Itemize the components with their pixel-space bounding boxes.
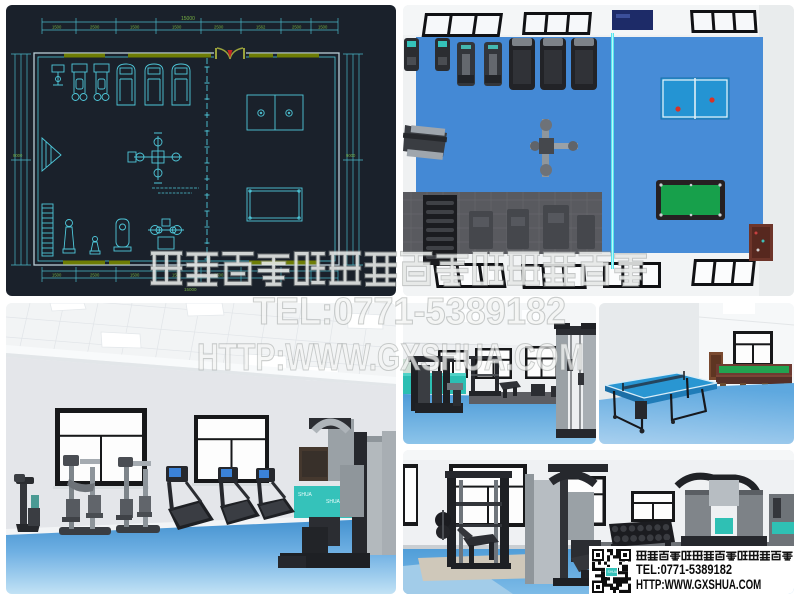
svg-text:1500: 1500 [130, 273, 140, 278]
svg-text:SHUA: SHUA [608, 570, 618, 574]
svg-text:15000: 15000 [184, 287, 197, 292]
svg-text:SHUA: SHUA [298, 492, 313, 498]
svg-text:9000: 9000 [346, 153, 356, 158]
svg-text:15000: 15000 [181, 16, 195, 22]
svg-text:1500: 1500 [130, 25, 140, 30]
svg-text:2500: 2500 [292, 25, 302, 30]
svg-text:2500: 2500 [90, 25, 100, 30]
svg-text:1562: 1562 [256, 25, 266, 30]
svg-text:1500: 1500 [318, 25, 328, 30]
svg-text:1500: 1500 [52, 273, 62, 278]
svg-text:1500: 1500 [172, 273, 182, 278]
svg-text:1500: 1500 [172, 25, 182, 30]
svg-text:2500: 2500 [90, 273, 100, 278]
svg-text:2500: 2500 [214, 273, 224, 278]
svg-text:9000: 9000 [13, 153, 23, 158]
svg-text:2500: 2500 [214, 25, 224, 30]
svg-text:1500: 1500 [52, 25, 62, 30]
svg-text:SHUA: SHUA [326, 499, 341, 505]
